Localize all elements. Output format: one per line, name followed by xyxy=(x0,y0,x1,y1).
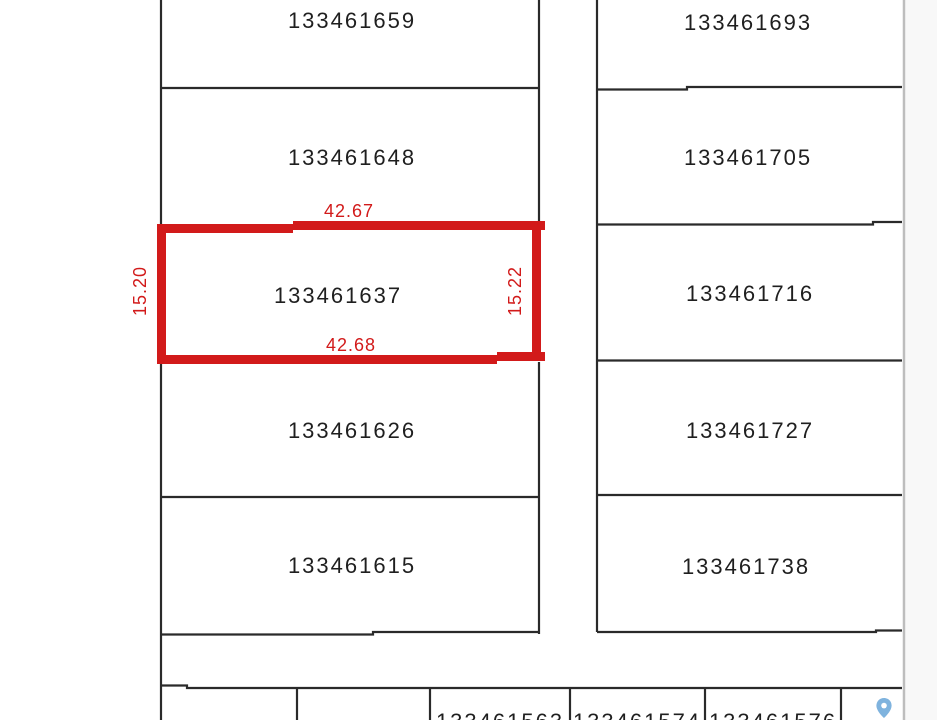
parcel-label: 133461727 xyxy=(686,418,814,443)
dimension-bottom: 42.68 xyxy=(326,335,376,355)
dimension-top: 42.67 xyxy=(324,201,374,221)
parcel-133461563[interactable]: 133461563 xyxy=(430,688,570,720)
parcel-label: 133461716 xyxy=(686,281,814,306)
parcel-label: 133461563 xyxy=(436,709,564,720)
parcel-label: 133461637 xyxy=(274,283,402,308)
highlight-top-left-segment xyxy=(157,224,293,233)
parcel-133461716[interactable]: 133461716 xyxy=(597,225,902,360)
pin-hole xyxy=(881,703,887,709)
parcel-133461738[interactable]: 133461738 xyxy=(597,495,902,632)
parcel-133461705[interactable]: 133461705 xyxy=(597,89,902,224)
parcel-label: 133461615 xyxy=(288,553,416,578)
parcel-label: 133461705 xyxy=(684,145,812,170)
parcel-133461576[interactable]: 133461576 xyxy=(705,688,841,720)
highlight-bottom-left-segment xyxy=(157,355,497,364)
parcel-133461574[interactable]: 133461574 xyxy=(570,688,705,720)
highlight-east-segment xyxy=(532,221,541,361)
parcel-map-canvas: 133461659 133461648 133461626 133461615 … xyxy=(0,0,937,720)
parcel-cell[interactable] xyxy=(161,688,297,720)
parcel-133461693[interactable]: 133461693 xyxy=(597,0,902,88)
parcel-133461626[interactable]: 133461626 xyxy=(161,364,539,497)
cadastral-map-viewport[interactable]: 133461659 133461648 133461626 133461615 … xyxy=(0,0,937,720)
parcel-label: 133461626 xyxy=(288,418,416,443)
highlight-west-segment xyxy=(157,224,166,364)
parcel-label: 133461659 xyxy=(288,8,416,33)
parcel-cell[interactable] xyxy=(297,688,430,720)
parcel-133461727[interactable]: 133461727 xyxy=(597,360,902,495)
parcel-region[interactable] xyxy=(161,688,297,720)
parcel-label: 133461693 xyxy=(684,10,812,35)
parcel-133461659[interactable]: 133461659 xyxy=(161,0,539,88)
parcel-cell[interactable] xyxy=(841,688,903,720)
parcel-label: 133461576 xyxy=(709,709,837,720)
map-outside-area xyxy=(906,0,937,720)
parcel-label: 133461574 xyxy=(573,709,701,720)
highlight-top-right-segment xyxy=(293,221,545,230)
dimension-left: 15.20 xyxy=(130,266,150,316)
dimension-right: 15.22 xyxy=(505,266,525,316)
parcel-region[interactable] xyxy=(841,688,903,720)
parcel-label: 133461738 xyxy=(682,554,810,579)
boundary-bottom-row-north xyxy=(161,686,902,689)
parcel-133461615[interactable]: 133461615 xyxy=(161,497,539,634)
parcel-region[interactable] xyxy=(297,688,430,720)
parcel-label: 133461648 xyxy=(288,145,416,170)
